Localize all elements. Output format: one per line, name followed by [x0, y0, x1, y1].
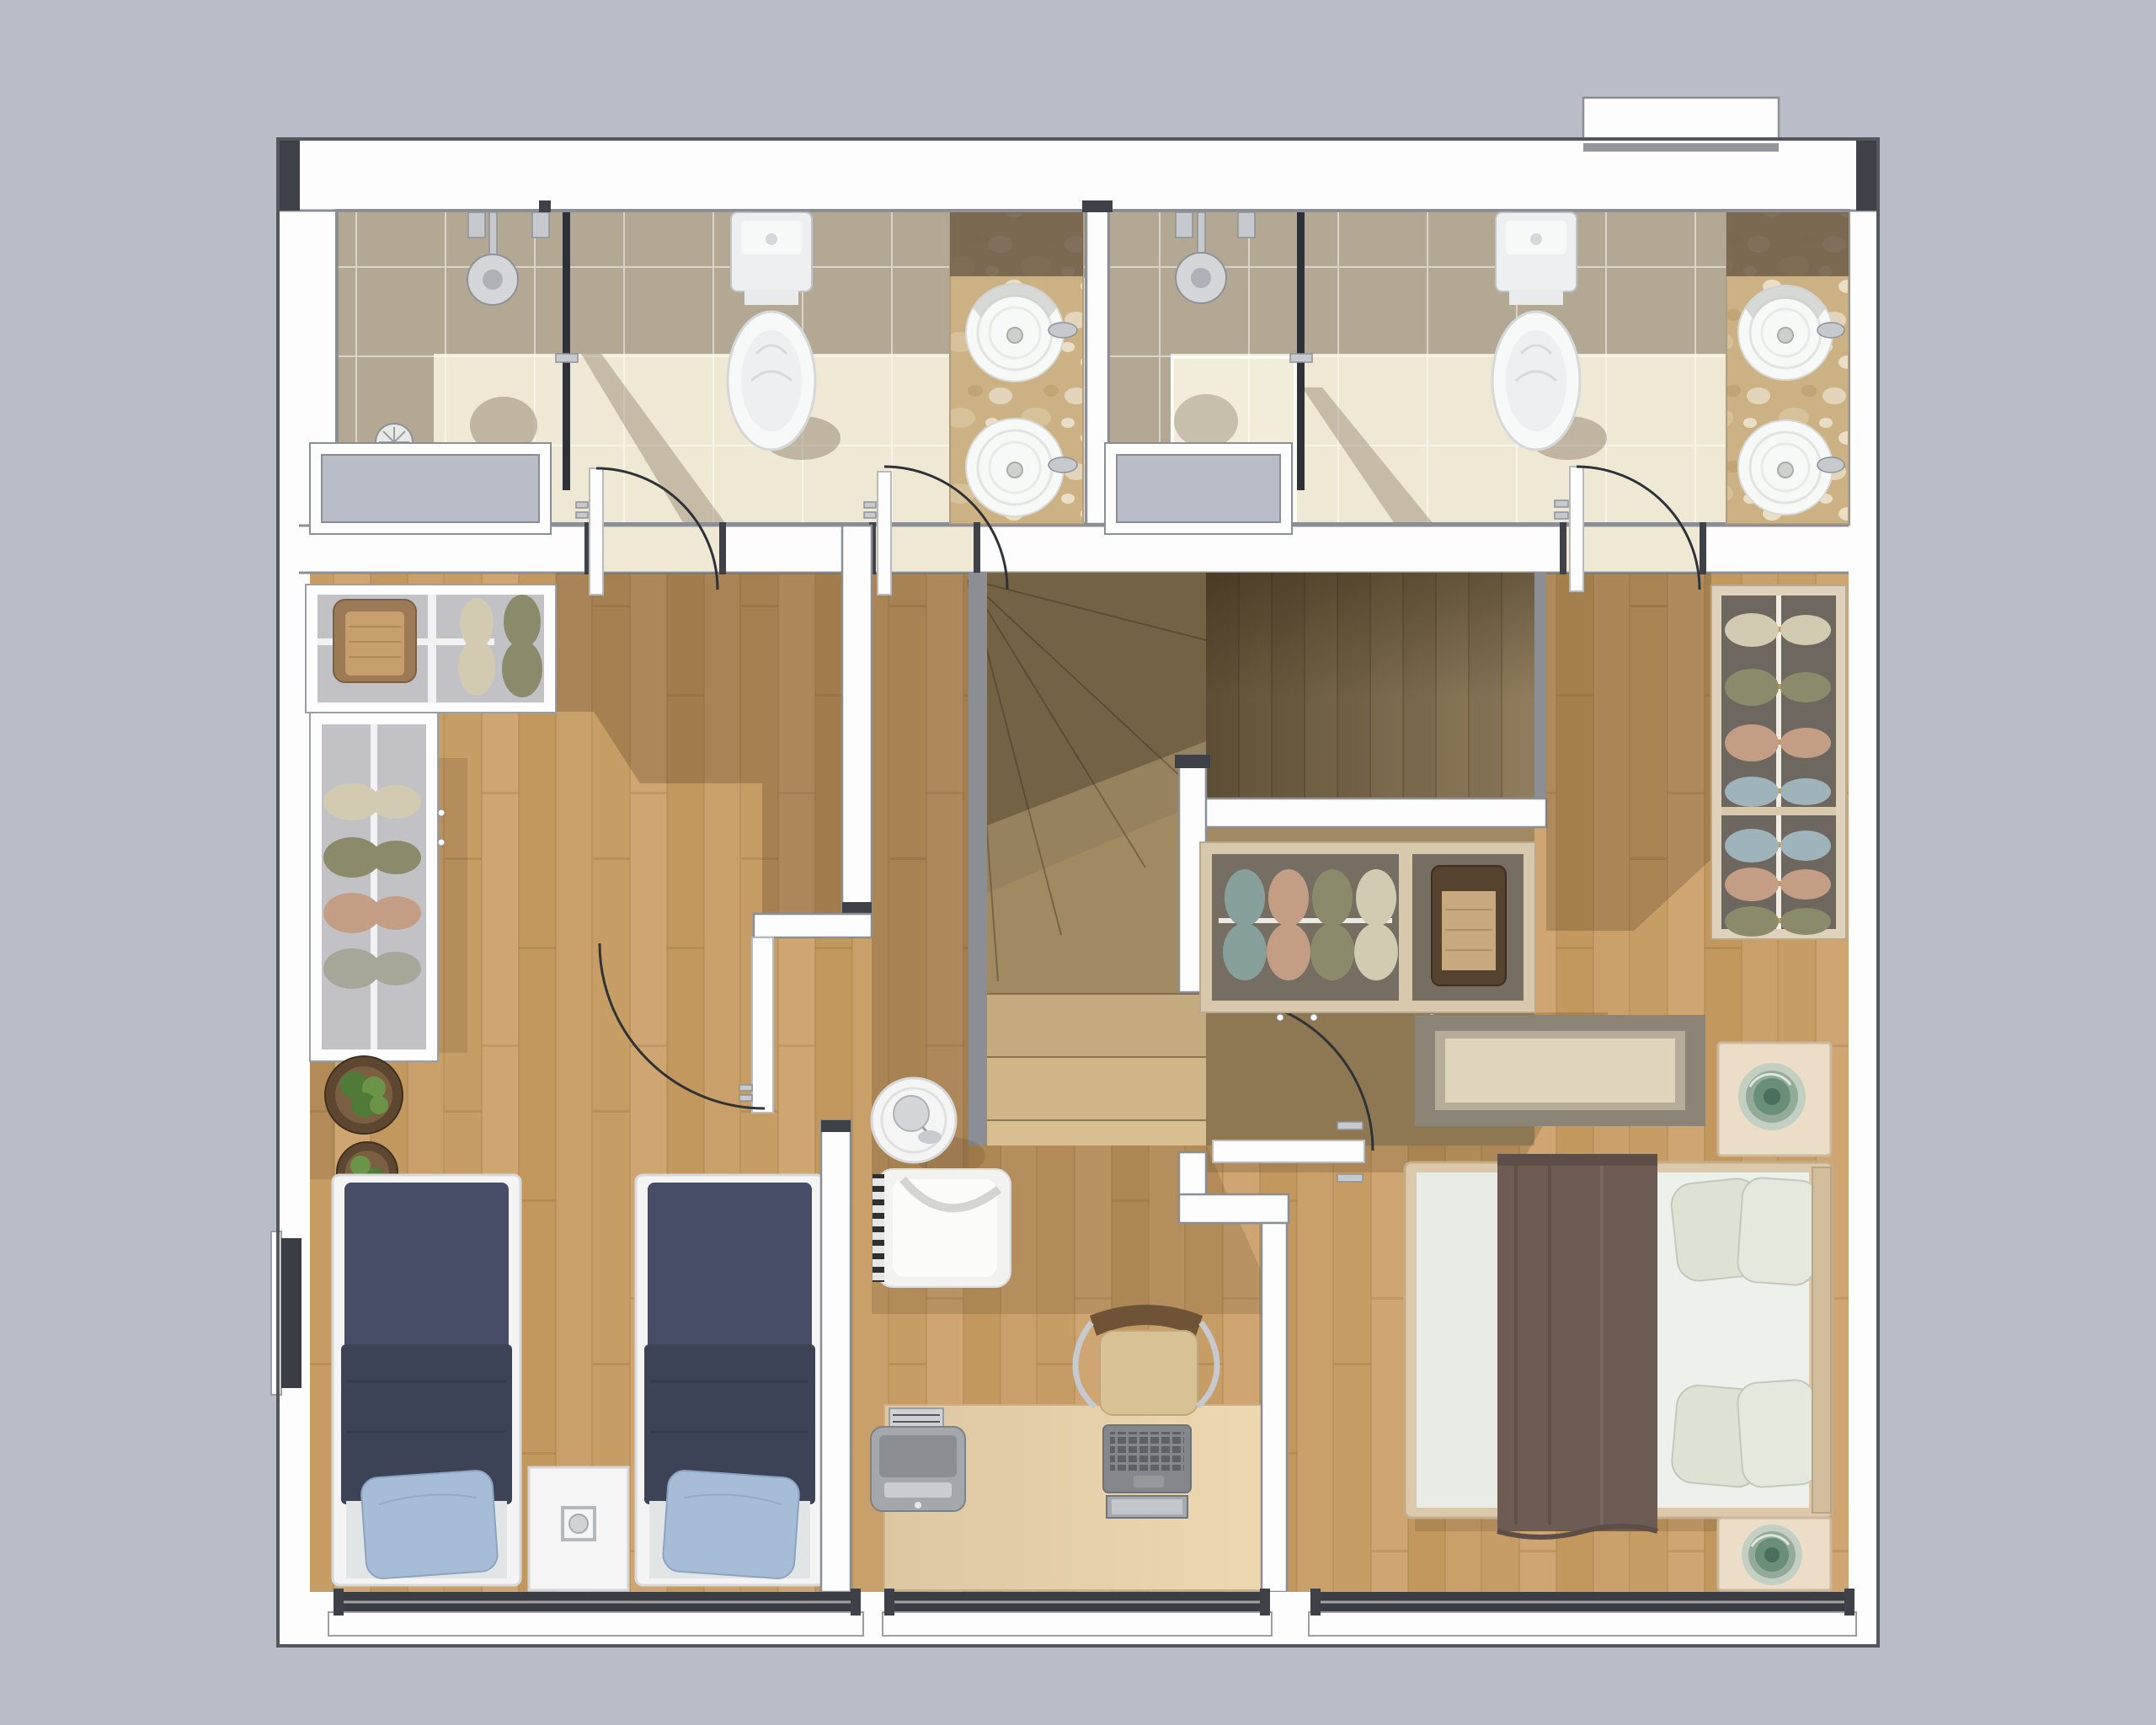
- fringed-throw: [873, 1174, 884, 1282]
- wall-cap: [539, 200, 551, 212]
- window: [281, 1238, 302, 1388]
- bedroom-wall-lower: [821, 1120, 851, 1592]
- wall-lower: [1262, 1223, 1287, 1592]
- nightstand: [529, 1467, 628, 1590]
- flush-button: [766, 233, 777, 245]
- window: [328, 1592, 863, 1636]
- lightwell-right: [1105, 443, 1292, 534]
- sink-plug: [1007, 328, 1022, 343]
- wall-cap: [842, 902, 872, 914]
- door-handle: [1337, 1174, 1363, 1182]
- rug: [1415, 1015, 1705, 1126]
- wall-cap: [1856, 139, 1878, 211]
- faucet: [1817, 457, 1844, 473]
- stair-right-wall: [1534, 573, 1546, 804]
- closet-divider: [428, 595, 436, 702]
- nightstand: [1718, 1043, 1831, 1156]
- green-glass-decor: [1738, 1063, 1806, 1130]
- vanity: [1726, 212, 1849, 524]
- shower-valve: [1238, 212, 1255, 238]
- shower-valve: [1176, 212, 1193, 238]
- bottom-wall: [278, 1589, 1878, 1646]
- potted-plant: [325, 1056, 403, 1134]
- touchpad: [1134, 1476, 1164, 1487]
- double-bed: [1405, 1154, 1833, 1537]
- duvet-upper: [344, 1183, 509, 1351]
- lightwell-left: [310, 443, 551, 534]
- throw-blanket: [1497, 1154, 1657, 1537]
- counter-dark-end: [950, 212, 1083, 276]
- faucet: [1049, 323, 1077, 338]
- wicker-basket: [334, 600, 416, 682]
- faucet: [1817, 323, 1844, 338]
- keyboard: [1110, 1432, 1184, 1471]
- flush-button: [1530, 233, 1542, 245]
- wardrobe-divider: [1721, 807, 1836, 815]
- outcrop-shadow: [1583, 143, 1779, 152]
- window-sill: [883, 1612, 1272, 1636]
- headboard: [1812, 1167, 1831, 1513]
- bedroom-wall-upper: [842, 526, 872, 914]
- wall-cap: [1175, 755, 1210, 768]
- upper-flight: [1206, 573, 1534, 800]
- wall-stub: [1179, 1152, 1206, 1199]
- wall-cap: [821, 1120, 851, 1132]
- closet-side-section: [310, 713, 445, 1061]
- door-handle: [739, 1085, 752, 1091]
- toilet-neck: [1509, 290, 1563, 305]
- laptop: [1103, 1425, 1191, 1518]
- armchair: [873, 1169, 1011, 1287]
- door-handle: [739, 1095, 752, 1101]
- window-sill: [1309, 1612, 1856, 1636]
- shower-valve: [532, 212, 549, 238]
- printer-button: [915, 1502, 921, 1509]
- window: [1309, 1592, 1856, 1636]
- desk: [871, 1405, 1280, 1590]
- vanity: [950, 212, 1083, 524]
- pillow: [1737, 1379, 1821, 1488]
- hanging-clothes: [1725, 829, 1831, 937]
- wall-cap: [1082, 200, 1113, 212]
- sink-plug: [1007, 462, 1022, 478]
- twin-bed: [636, 1175, 824, 1585]
- door-leaf: [1570, 467, 1583, 591]
- printer: [871, 1427, 965, 1511]
- door-leaf: [752, 937, 773, 1113]
- left-wall-window: [271, 1231, 302, 1395]
- floor-plan-svg: [0, 0, 2156, 1725]
- wall-jog: [1179, 1194, 1289, 1223]
- duvet-upper: [648, 1183, 812, 1351]
- partition-handle: [1290, 354, 1312, 362]
- blue-pillow: [360, 1470, 499, 1580]
- shower-valve: [468, 212, 485, 238]
- stair-left-wall: [969, 573, 987, 1146]
- storage-box: [1432, 866, 1506, 985]
- partition-handle: [556, 354, 578, 362]
- nightstand: [1718, 1518, 1831, 1590]
- toilet: [728, 212, 815, 450]
- green-glass-decor: [1742, 1525, 1802, 1585]
- door-stub-wall: [754, 914, 872, 937]
- wardrobe: [1711, 585, 1846, 939]
- stair-south-wall: [1179, 798, 1546, 827]
- under-stair-closet: [1200, 842, 1535, 1021]
- shower-shadow: [1174, 394, 1238, 448]
- closet-divider: [371, 724, 377, 1049]
- chair-seat: [1100, 1331, 1198, 1415]
- sink-plug: [1778, 462, 1793, 478]
- wall-cap: [278, 139, 300, 211]
- lower-steps: [987, 994, 1206, 1146]
- floor-plan-render: [0, 0, 2156, 1725]
- closet-top-section: [306, 585, 556, 713]
- door-opening: [591, 527, 719, 571]
- shower-head-center: [1191, 268, 1211, 288]
- pillow: [1737, 1177, 1821, 1286]
- door-leaf: [590, 468, 603, 595]
- toilet-neck: [744, 290, 798, 305]
- counter-dark-end: [1726, 212, 1849, 276]
- twin-bed: [333, 1175, 520, 1585]
- door-leaf: [878, 472, 891, 595]
- door-handle: [1337, 1122, 1363, 1130]
- window: [883, 1592, 1272, 1636]
- shower-head-center: [483, 270, 503, 290]
- sink-plug: [1778, 328, 1793, 343]
- toilet: [1492, 212, 1580, 450]
- door-opening: [1566, 527, 1700, 571]
- faucet: [1049, 457, 1077, 473]
- window-sill: [328, 1612, 863, 1636]
- decor-sphere: [569, 1514, 588, 1533]
- door-leaf: [1213, 1140, 1364, 1162]
- blue-pillow: [662, 1470, 800, 1580]
